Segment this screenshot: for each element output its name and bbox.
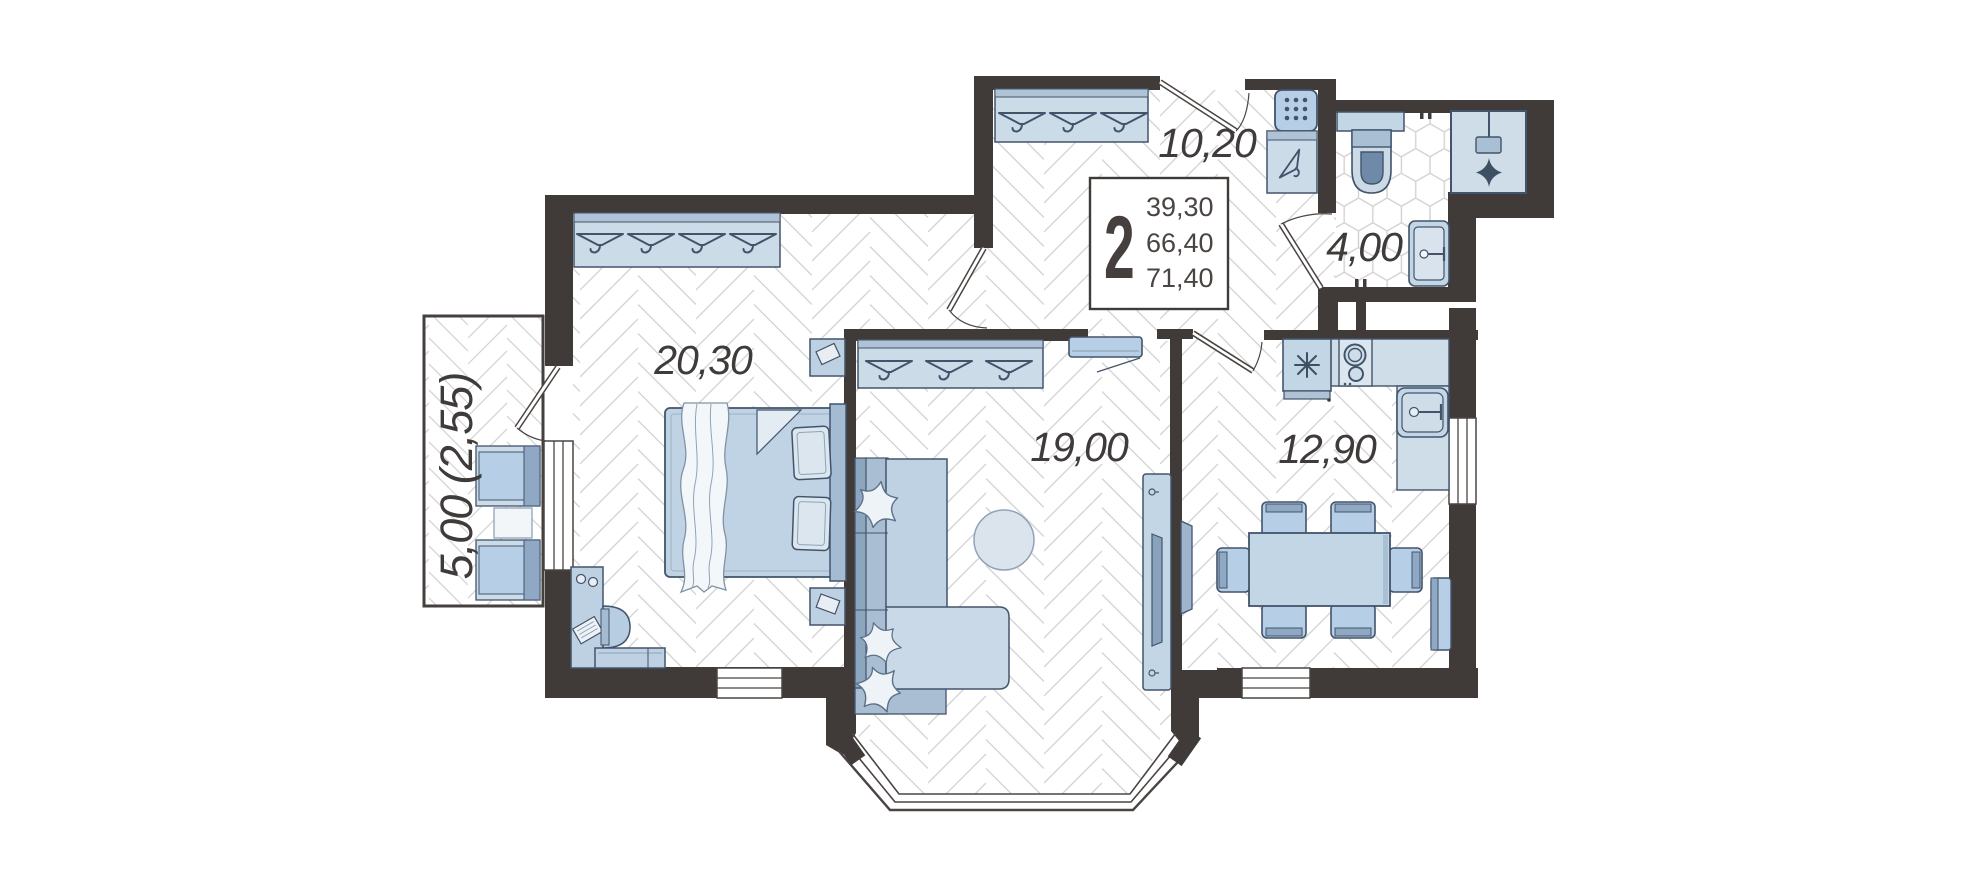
svg-text:2: 2 — [1104, 197, 1133, 297]
svg-text:19,00: 19,00 — [1030, 424, 1129, 470]
svg-text:20,30: 20,30 — [653, 337, 753, 383]
svg-text:4,00: 4,00 — [1326, 224, 1403, 270]
svg-text:10,20: 10,20 — [1158, 120, 1257, 166]
svg-text:12,90: 12,90 — [1278, 426, 1377, 472]
svg-text:66,40: 66,40 — [1146, 228, 1214, 258]
svg-text:39,30: 39,30 — [1146, 192, 1214, 222]
svg-text:71,40: 71,40 — [1146, 263, 1214, 293]
svg-text:5,00 (2,55): 5,00 (2,55) — [431, 373, 482, 580]
